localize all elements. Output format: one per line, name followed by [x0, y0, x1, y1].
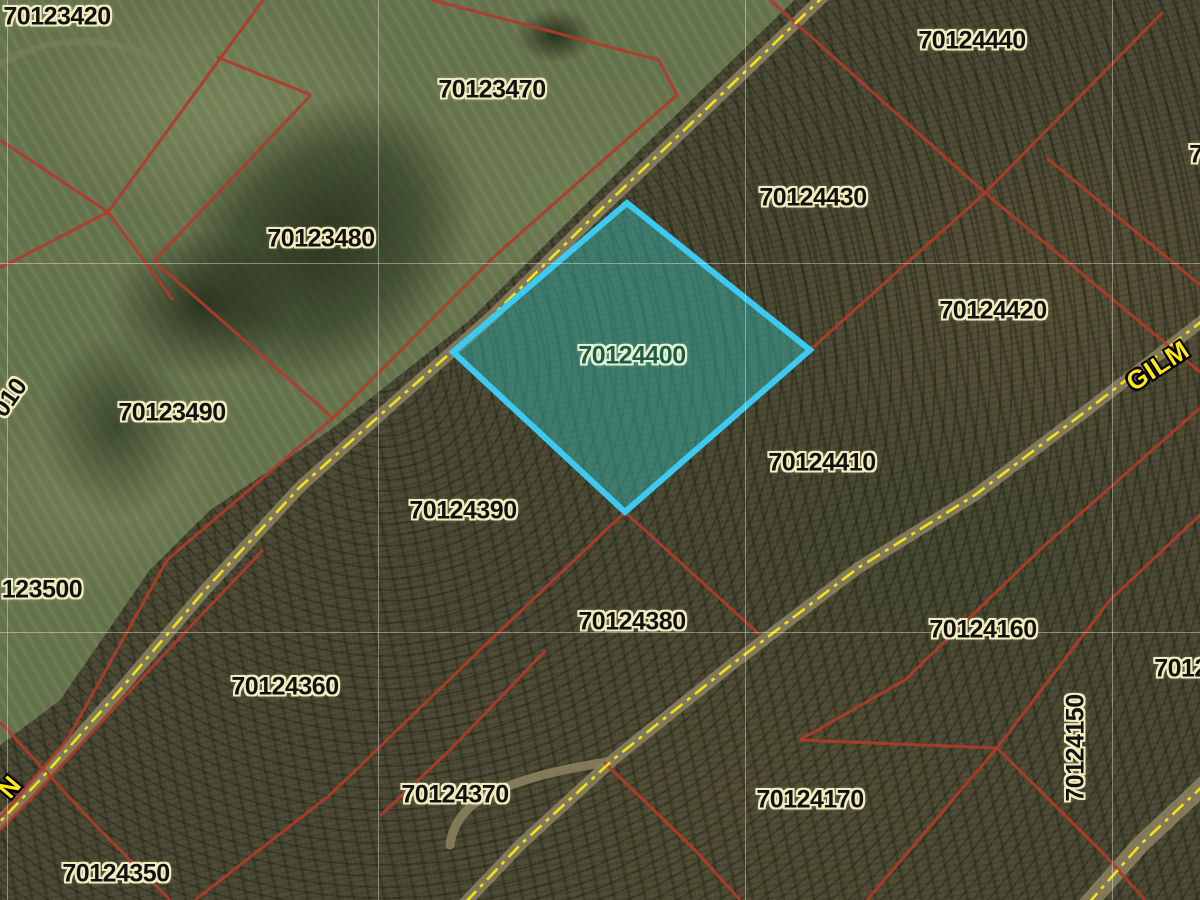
selected-parcel-label: 70124400: [578, 342, 685, 371]
parcel-label: 123500: [2, 576, 82, 605]
parcel-label: 70124390: [409, 497, 516, 526]
parcel-label: 7: [1189, 141, 1200, 170]
parcel-label: 70123480: [267, 225, 374, 254]
map-overlay-layer: [0, 0, 1200, 900]
parcel-label: 7012: [1154, 655, 1200, 684]
parcel-label: 70124350: [62, 860, 169, 889]
parcel-label: 70124360: [231, 673, 338, 702]
parcel-label: 70124170: [756, 786, 863, 815]
parcel-label: 70123470: [438, 76, 545, 105]
parcel-label: 70124420: [939, 297, 1046, 326]
parcel-label: 70124380: [578, 608, 685, 637]
parcel-label: 70124440: [918, 27, 1025, 56]
map-canvas[interactable]: 7012342070123470701244407012443070123480…: [0, 0, 1200, 900]
field-trail: [0, 41, 160, 70]
parcel-label: 70123420: [3, 3, 110, 32]
parcel-label: 70124160: [929, 616, 1036, 645]
parcel-label: 70124370: [401, 781, 508, 810]
parcel-label: 70124430: [759, 184, 866, 213]
parcel-label: 70123490: [118, 399, 225, 428]
parcel-label: 70124150: [1062, 694, 1091, 801]
parcel-label: 70124410: [768, 449, 875, 478]
